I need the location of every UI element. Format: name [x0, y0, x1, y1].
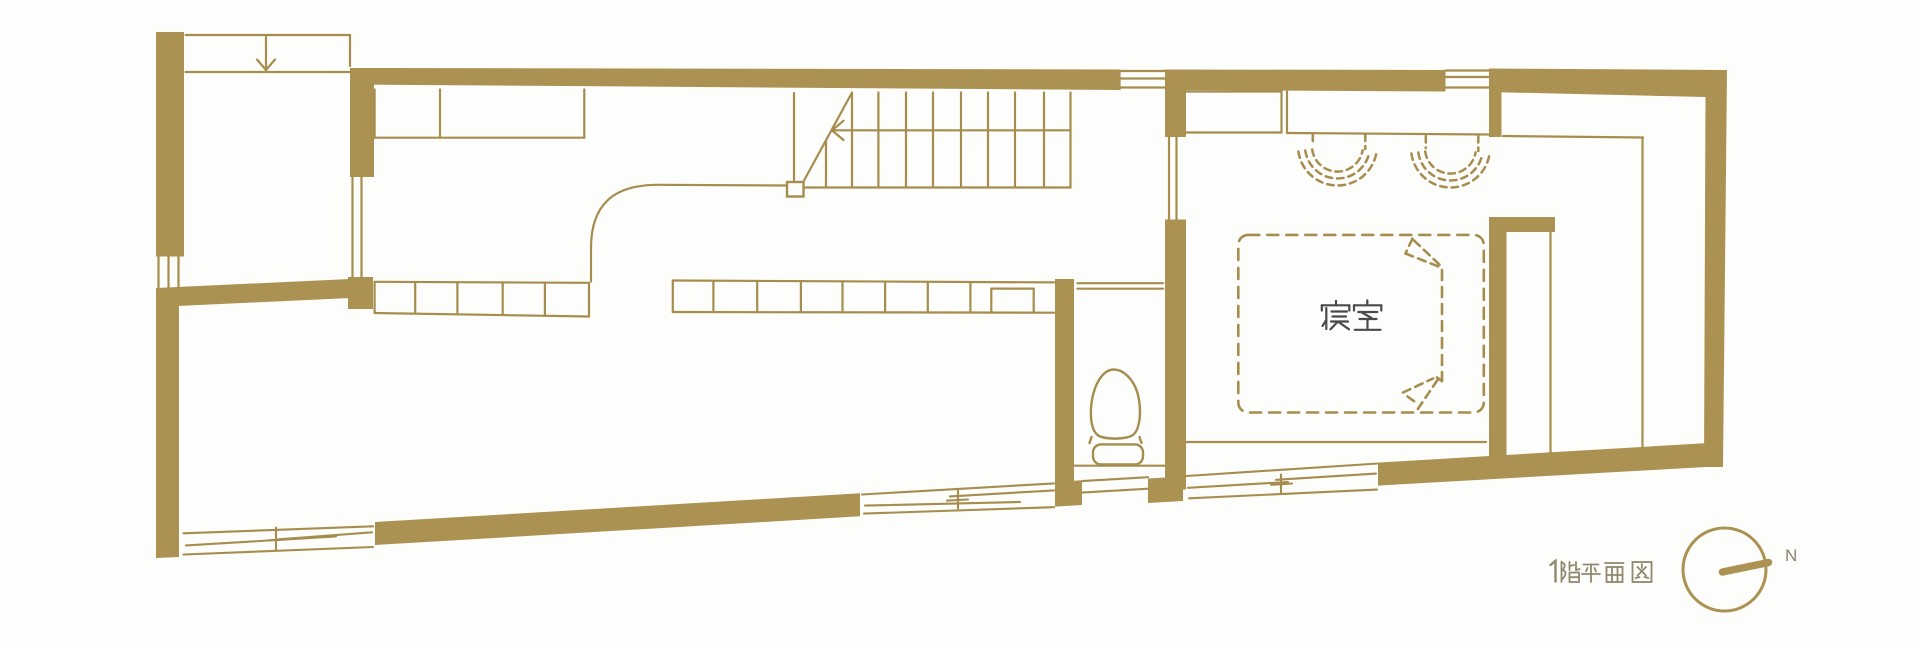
svg-text:N: N — [1785, 546, 1797, 565]
